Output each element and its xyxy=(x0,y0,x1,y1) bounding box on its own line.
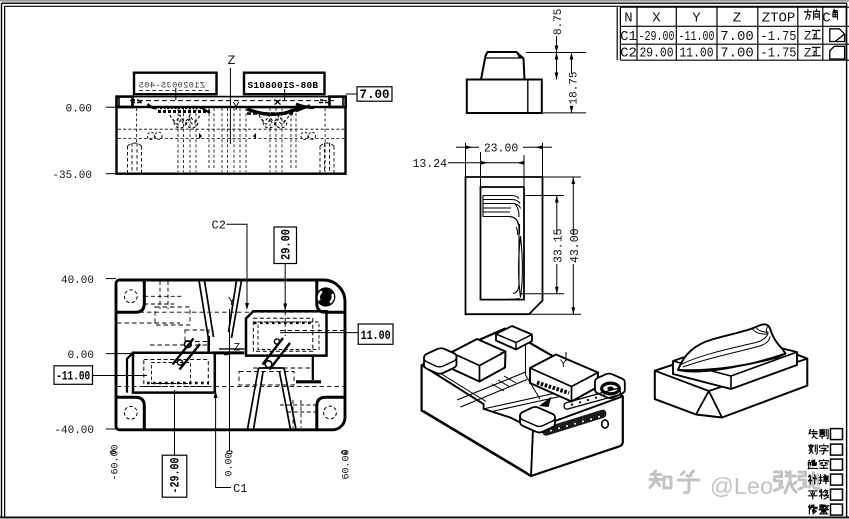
svg-text:Y: Y xyxy=(692,11,701,27)
svg-text:-60.00: -60.00 xyxy=(111,444,122,480)
svg-text:Y: Y xyxy=(233,100,240,114)
svg-text:33.15: 33.15 xyxy=(552,228,565,263)
svg-text:-35.00: -35.00 xyxy=(52,170,92,182)
svg-text:ZTOP: ZTOP xyxy=(762,11,796,27)
svg-text:40.00: 40.00 xyxy=(61,275,94,287)
svg-text:Z: Z xyxy=(733,11,741,27)
svg-text:-11.00: -11.00 xyxy=(679,29,715,45)
svg-text:X: X xyxy=(652,11,661,27)
svg-text:Y: Y xyxy=(228,295,235,309)
svg-text:@Leo: @Leo xyxy=(710,473,773,499)
svg-text:Z: Z xyxy=(228,53,236,68)
svg-text:29.00: 29.00 xyxy=(640,46,674,62)
svg-text:0.00: 0.00 xyxy=(66,104,92,116)
svg-text:0.00: 0.00 xyxy=(68,350,94,362)
svg-text:C: C xyxy=(822,11,830,27)
svg-text:C2: C2 xyxy=(212,219,226,233)
svg-text:23.00: 23.00 xyxy=(484,142,519,155)
svg-text:Z: Z xyxy=(804,30,812,44)
svg-text:7.00: 7.00 xyxy=(359,88,389,102)
svg-text:Z: Z xyxy=(804,46,812,60)
svg-text:N: N xyxy=(624,11,632,27)
svg-text:-1.75: -1.75 xyxy=(761,46,797,62)
svg-text:0.00: 0.00 xyxy=(224,452,235,476)
svg-text:C1: C1 xyxy=(233,482,247,496)
svg-text:C2: C2 xyxy=(620,46,637,62)
svg-text:Z10200JS-40S: Z10200JS-40S xyxy=(138,81,205,91)
svg-text:18.75: 18.75 xyxy=(569,71,581,104)
svg-text:8.75: 8.75 xyxy=(553,9,565,35)
svg-text:7.00: 7.00 xyxy=(720,29,754,45)
svg-text:-11.00: -11.00 xyxy=(56,370,90,384)
svg-text:11.00: 11.00 xyxy=(680,46,714,62)
svg-text:13.24: 13.24 xyxy=(412,158,447,171)
svg-text:-29.00: -29.00 xyxy=(169,458,183,494)
svg-text:11.00: 11.00 xyxy=(361,329,391,343)
svg-text:43.00: 43.00 xyxy=(569,228,582,263)
svg-text:7.00: 7.00 xyxy=(720,46,754,62)
svg-text:29.00: 29.00 xyxy=(280,229,294,260)
svg-text:S10800IS-80B: S10800IS-80B xyxy=(248,80,319,91)
svg-text:C1: C1 xyxy=(620,29,637,45)
svg-text:-29.00: -29.00 xyxy=(639,29,675,45)
svg-text:60.00: 60.00 xyxy=(342,449,353,479)
svg-text:-1.75: -1.75 xyxy=(761,29,797,45)
svg-text:-40.00: -40.00 xyxy=(54,425,94,437)
